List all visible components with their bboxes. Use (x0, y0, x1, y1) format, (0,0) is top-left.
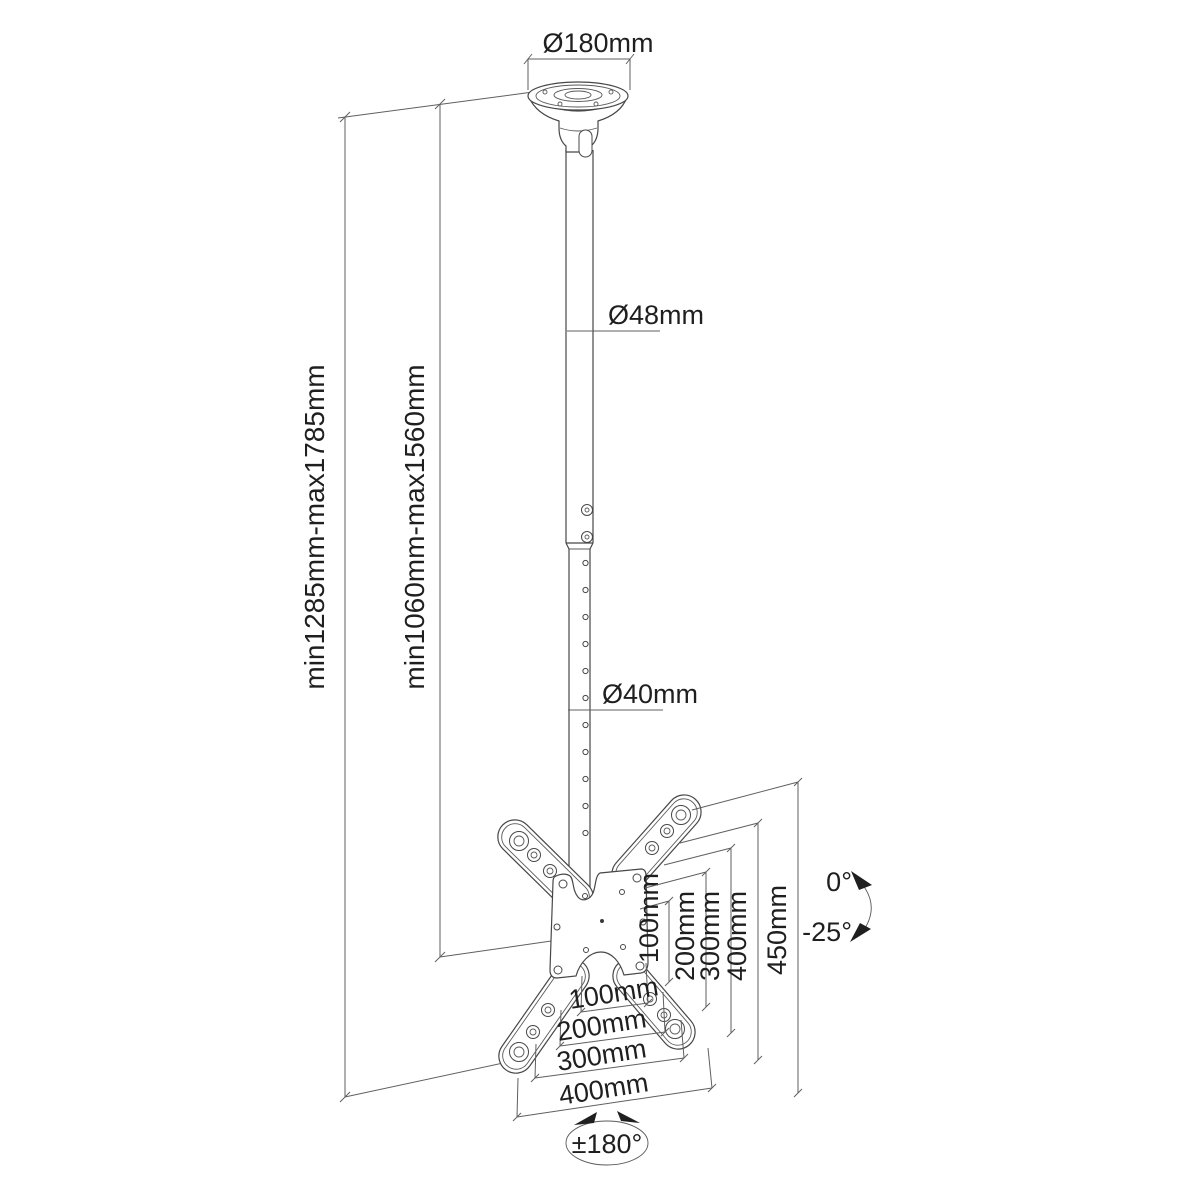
upper-pole (566, 150, 593, 549)
label-vesa-v-300: 300mm (695, 891, 725, 981)
dim-leader-bracket-bottom (345, 1060, 517, 1097)
vesa-hole (559, 880, 567, 888)
label-overall-height-range: min1285mm-max1785mm (299, 364, 330, 689)
label-upper-pole-diameter: Ø48mm (608, 300, 704, 330)
diagram-canvas: min1285mm-max1785mm min1060mm-max1560mm (0, 0, 1200, 1200)
label-pole-height-range: min1060mm-max1560mm (399, 364, 430, 689)
cable-slot (579, 130, 592, 157)
arm-end-screw (672, 806, 691, 825)
locking-knob (582, 532, 593, 543)
swivel-indicator: ±180° (566, 1111, 648, 1165)
tilt-arrow-up-icon (851, 871, 872, 890)
vesa-hole (584, 948, 589, 953)
swivel-arrow-left-icon (574, 1112, 597, 1125)
label-lower-pole-diameter: Ø40mm (602, 679, 698, 709)
extension-line (517, 1078, 518, 1117)
label-plate-diameter: Ø180mm (542, 28, 653, 58)
overall-height-dimensions: min1285mm-max1785mm min1060mm-max1560mm (299, 92, 572, 1102)
arm-knob (544, 865, 557, 878)
vesa-hole (554, 924, 560, 930)
collar-left (566, 543, 569, 549)
vesa-hole (620, 890, 625, 895)
arm-end-screw (510, 1043, 529, 1062)
extension-line (708, 1048, 712, 1088)
leader (664, 848, 731, 865)
leader (692, 782, 798, 810)
vesa-hole (583, 894, 588, 899)
vesa-hole (554, 966, 562, 974)
collar-right (590, 543, 593, 549)
tilt-arrow-down-icon (850, 923, 871, 942)
label-vesa-v-400: 400mm (722, 891, 752, 981)
lower-pole (569, 549, 590, 897)
label-tilt-min: -25° (802, 917, 852, 947)
arm-knob (542, 1004, 555, 1017)
swivel-arrow-right-icon (617, 1111, 640, 1123)
ceiling-reference-line (338, 92, 533, 118)
label-swivel-range: ±180° (572, 1129, 643, 1159)
ceiling-mount-diagram: min1285mm-max1785mm min1060mm-max1560mm (0, 0, 1200, 1200)
ceiling-plate-disc (528, 82, 628, 110)
upper-pole-body (566, 150, 593, 543)
arm-knob (528, 849, 541, 862)
label-tilt-max: 0° (826, 867, 852, 897)
center-mark (600, 919, 604, 923)
vesa-hole (621, 945, 626, 950)
arm-knob (527, 1026, 540, 1039)
tilt-angle-indicator: 0° -25° (802, 867, 872, 947)
ceiling-plate (528, 82, 628, 157)
label-vesa-v-450: 450mm (762, 885, 792, 975)
arm-knob (646, 842, 659, 855)
plate-diameter-dimension: Ø180mm (524, 28, 654, 90)
arm-knob (661, 825, 674, 838)
locking-knob (582, 505, 593, 516)
arm-end-screw (510, 832, 529, 851)
